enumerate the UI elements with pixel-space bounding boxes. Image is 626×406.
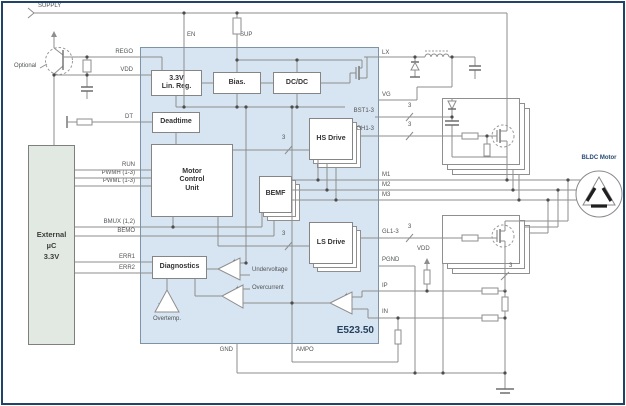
ls-fet-internals — [361, 178, 570, 291]
hs-fet-internals — [316, 98, 520, 202]
powerstage-layer — [0, 0, 626, 406]
diagram-canvas: External µC 3.3V 3.3V Lin. Reg. Bias. DC… — [0, 0, 626, 406]
